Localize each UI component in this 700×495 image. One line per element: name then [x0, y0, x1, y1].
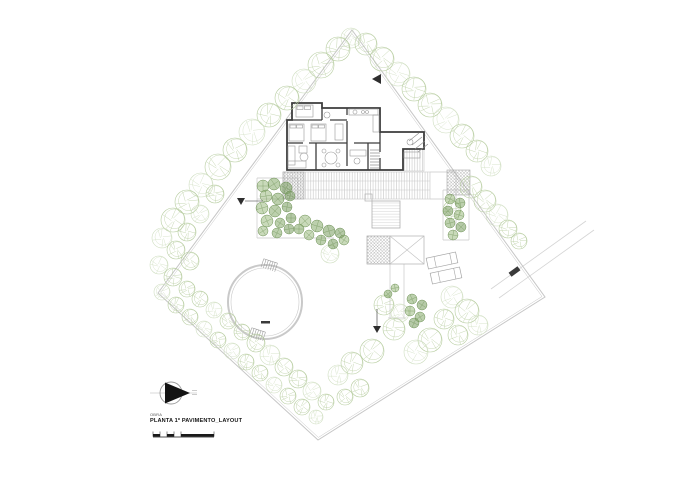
tree	[206, 302, 222, 318]
tree	[206, 185, 224, 203]
tree	[318, 394, 334, 410]
tree	[418, 328, 442, 352]
tree	[192, 291, 208, 307]
tree	[386, 62, 410, 86]
site-plan-drawing	[0, 0, 700, 495]
tree	[224, 343, 240, 359]
tree	[309, 410, 323, 424]
tree	[448, 325, 468, 345]
pool	[228, 259, 302, 341]
access-road	[491, 221, 594, 298]
tree	[289, 370, 307, 388]
tree	[355, 33, 377, 55]
lounger	[430, 267, 462, 284]
entry-marker	[372, 74, 381, 84]
scale-bar	[153, 432, 214, 438]
tree	[383, 318, 405, 340]
tree	[370, 47, 394, 71]
tree	[474, 190, 496, 212]
tree	[499, 220, 517, 238]
north-arrow-icon	[150, 382, 197, 404]
tree	[441, 286, 463, 308]
tree	[280, 388, 296, 404]
tree	[152, 228, 172, 248]
tree	[468, 315, 488, 335]
site-plan-page: OBRA PLANTA 1º PAVIMENTO_LAYOUT	[0, 0, 700, 495]
tree	[360, 339, 384, 363]
tree	[164, 268, 182, 286]
tree	[238, 354, 254, 370]
tree	[191, 205, 209, 223]
tree	[266, 377, 282, 393]
hatched-platform	[367, 236, 390, 264]
title-block: OBRA PLANTA 1º PAVIMENTO_LAYOUT	[150, 413, 242, 424]
tree	[168, 297, 184, 313]
tree	[351, 379, 369, 397]
tree	[175, 190, 199, 214]
drawing-title: PLANTA 1º PAVIMENTO_LAYOUT	[150, 418, 242, 425]
stairs	[370, 150, 380, 168]
sun-loungers	[426, 252, 462, 284]
site-boundary	[158, 30, 545, 440]
tree	[450, 124, 474, 148]
pergola-x-square	[390, 236, 424, 264]
trees-layer	[150, 28, 527, 424]
tree	[260, 345, 280, 365]
tree	[150, 256, 168, 274]
tree	[460, 176, 482, 198]
tree	[294, 399, 310, 415]
tree	[466, 140, 488, 162]
tree	[308, 52, 334, 78]
tree	[404, 340, 428, 364]
direction-marker	[373, 309, 381, 333]
tree	[328, 365, 348, 385]
tree	[511, 233, 527, 249]
tree	[275, 358, 293, 376]
tree	[337, 389, 353, 405]
tree	[275, 86, 299, 110]
tree	[181, 252, 199, 270]
tree	[252, 365, 268, 381]
tree	[434, 309, 454, 329]
tree	[210, 332, 226, 348]
tree	[433, 107, 459, 133]
tree	[486, 204, 508, 226]
tree	[303, 382, 321, 400]
tree	[257, 103, 281, 127]
tree	[402, 77, 426, 101]
tree	[178, 223, 196, 241]
tree	[154, 284, 170, 300]
tree	[196, 321, 212, 337]
tree	[223, 138, 247, 162]
tree	[341, 352, 363, 374]
lounger	[426, 252, 458, 269]
tree	[481, 156, 501, 176]
tree	[182, 309, 198, 325]
tree	[179, 281, 195, 297]
